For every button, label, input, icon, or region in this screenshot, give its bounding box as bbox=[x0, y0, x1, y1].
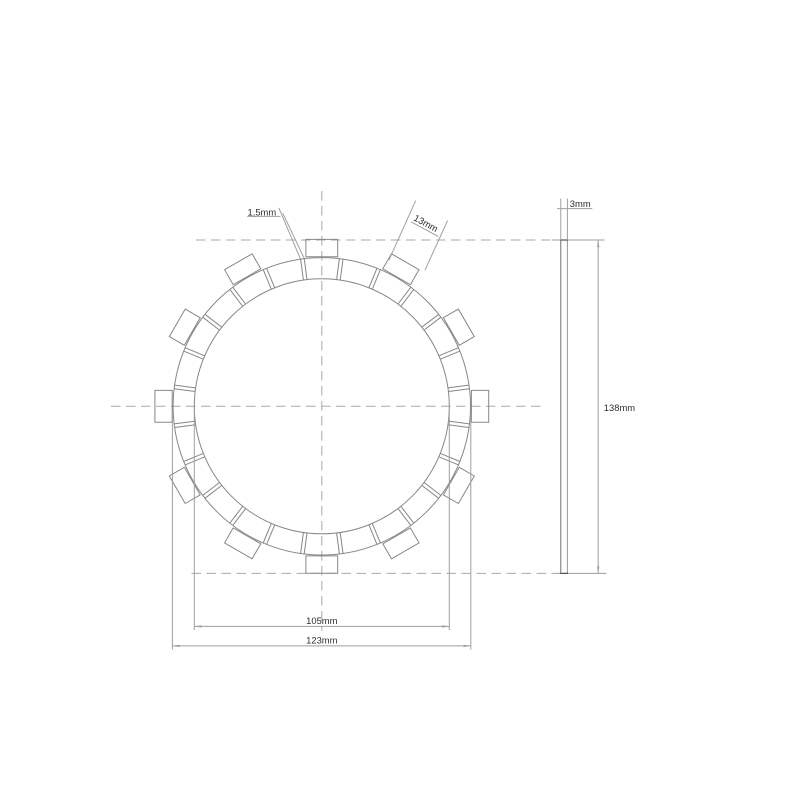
svg-text:138mm: 138mm bbox=[604, 402, 635, 413]
svg-text:1,5mm: 1,5mm bbox=[248, 206, 277, 217]
svg-text:123mm: 123mm bbox=[306, 634, 337, 645]
svg-text:3mm: 3mm bbox=[570, 198, 591, 209]
svg-text:105mm: 105mm bbox=[306, 615, 337, 626]
